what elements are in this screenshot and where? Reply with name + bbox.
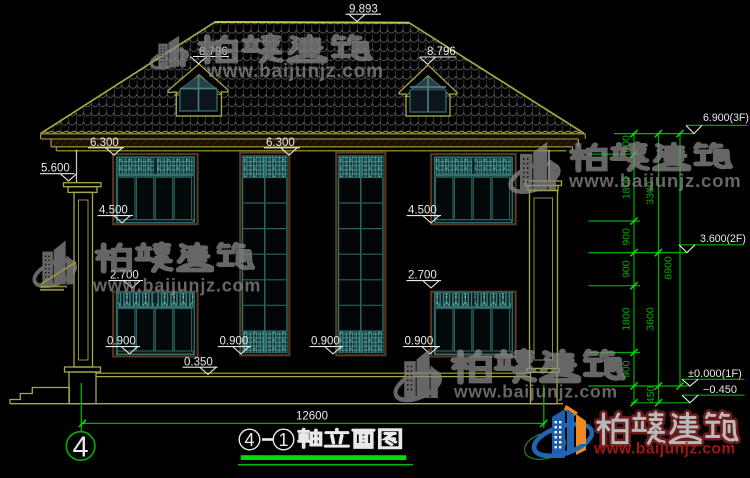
svg-text:3600: 3600: [645, 307, 657, 331]
svg-text:www.baijunjz.com: www.baijunjz.com: [92, 276, 261, 296]
svg-text:450: 450: [645, 386, 657, 404]
svg-text:−0.450: −0.450: [703, 384, 737, 396]
svg-text:900: 900: [620, 228, 632, 246]
svg-text:0.900: 0.900: [220, 336, 249, 348]
svg-text:6900: 6900: [663, 256, 675, 280]
svg-text:4.500: 4.500: [99, 205, 128, 217]
svg-text:4: 4: [244, 430, 254, 450]
svg-text:0.900: 0.900: [107, 336, 136, 348]
svg-text:9.893: 9.893: [349, 3, 378, 15]
svg-text:4.500: 4.500: [408, 205, 437, 217]
svg-text:www.baijunjz.com: www.baijunjz.com: [568, 170, 741, 191]
svg-text:12600: 12600: [296, 411, 328, 423]
svg-text:1800: 1800: [620, 307, 632, 331]
svg-text:2.700: 2.700: [408, 270, 437, 282]
svg-text:0.900: 0.900: [405, 336, 434, 348]
svg-text:6.300: 6.300: [266, 137, 295, 149]
svg-text:0.350: 0.350: [184, 356, 213, 368]
svg-text:±0.000(1F): ±0.000(1F): [688, 368, 742, 380]
svg-text:1: 1: [278, 430, 288, 450]
svg-text:0.900: 0.900: [311, 336, 340, 348]
svg-text:6.300: 6.300: [90, 137, 119, 149]
svg-text:www.baijunjz.com: www.baijunjz.com: [453, 382, 618, 402]
svg-text:3.600(2F): 3.600(2F): [700, 233, 746, 245]
svg-text:8.796: 8.796: [427, 46, 456, 58]
svg-text:4: 4: [73, 432, 89, 464]
svg-text:www.baijunjz.com: www.baijunjz.com: [593, 441, 736, 458]
svg-text:www.baijunjz.com: www.baijunjz.com: [206, 61, 384, 82]
svg-text:5.600: 5.600: [41, 163, 70, 175]
svg-text:6.900(3F): 6.900(3F): [703, 112, 749, 124]
svg-text:900: 900: [620, 260, 632, 278]
